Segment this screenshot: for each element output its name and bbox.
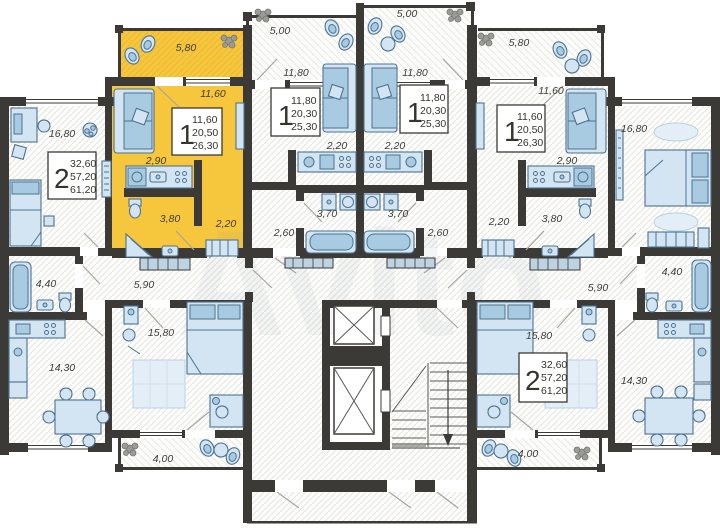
dim-highlighted-kitchen: 2,90 xyxy=(145,155,167,167)
dim-right1-balcony: 5,80 xyxy=(509,37,530,49)
floor-plan: Avito xyxy=(0,0,720,528)
dim-midright-kitchen: 2,20 xyxy=(384,140,406,152)
svg-text:57,20: 57,20 xyxy=(70,171,96,183)
elevator-shaft-2 xyxy=(334,368,390,434)
dim-right2-bedroom1: 16,80 xyxy=(621,123,647,135)
dim-midleft-living: 11,80 xyxy=(283,67,309,79)
svg-text:11,80: 11,80 xyxy=(420,92,446,104)
dim-left2-hallway: 5,90 xyxy=(134,279,155,291)
dim-left2-bedroom2: 15,80 xyxy=(148,327,174,339)
floor-plan-svg: Avito xyxy=(0,0,720,528)
dim-highlighted-living: 11,60 xyxy=(200,88,226,100)
dim-highlighted-bathroom: 3,80 xyxy=(160,213,181,225)
svg-text:32,60: 32,60 xyxy=(70,158,96,170)
dim-right1-kitchen: 2,90 xyxy=(556,155,578,167)
dim-midright-balcony: 5,00 xyxy=(397,8,418,20)
dim-right1-living: 11,60 xyxy=(538,85,564,97)
svg-text:11,60: 11,60 xyxy=(517,111,543,123)
svg-text:26,30: 26,30 xyxy=(517,137,543,149)
dim-right2-hallway: 5,90 xyxy=(588,282,609,294)
info-box-mid-left: 1 11,80 20,30 25,30 xyxy=(271,88,320,136)
dim-left2-bedroom1: 16,80 xyxy=(49,128,75,140)
dim-midleft-kitchen: 2,20 xyxy=(326,140,348,152)
dim-highlighted-hallway: 2,20 xyxy=(215,218,237,230)
dim-midleft-bathroom: 3,70 xyxy=(317,208,338,220)
info-box-highlighted: 1 11,60 20,50 26,30 xyxy=(172,108,222,155)
svg-text:20,30: 20,30 xyxy=(420,105,446,117)
svg-text:32,60: 32,60 xyxy=(541,359,567,371)
dim-right1-bathroom: 3,80 xyxy=(542,213,563,225)
info-box-left-2room: 2 32,60 57,20 61,20 xyxy=(48,152,96,199)
svg-text:2: 2 xyxy=(54,163,70,194)
dim-left2-balcony: 4,00 xyxy=(153,453,174,465)
svg-text:26,30: 26,30 xyxy=(192,140,218,152)
svg-text:25,30: 25,30 xyxy=(420,118,446,130)
svg-text:2: 2 xyxy=(525,365,541,396)
info-box-right-1room: 1 11,60 20,50 26,30 xyxy=(497,105,545,152)
dim-right2-bedroom2: 15,80 xyxy=(526,330,552,342)
dim-right1-hallway: 2,20 xyxy=(488,216,510,228)
dim-right2-bathroom: 4,40 xyxy=(662,266,683,278)
dim-right2-balcony: 4,00 xyxy=(518,448,539,460)
svg-text:20,50: 20,50 xyxy=(192,127,218,139)
dim-midleft-balcony: 5,00 xyxy=(270,25,291,37)
svg-text:20,30: 20,30 xyxy=(291,108,317,120)
svg-text:57,20: 57,20 xyxy=(541,372,567,384)
info-box-mid-right: 1 11,80 20,30 25,30 xyxy=(400,85,448,133)
dim-midright-living: 11,80 xyxy=(402,67,428,79)
svg-text:61,20: 61,20 xyxy=(541,385,567,397)
svg-text:11,80: 11,80 xyxy=(291,95,317,107)
dim-left2-kitchen: 14,30 xyxy=(49,362,75,374)
svg-text:11,60: 11,60 xyxy=(192,114,218,126)
svg-text:61,20: 61,20 xyxy=(70,184,96,196)
dim-midright-hallway: 2,60 xyxy=(427,227,449,239)
dim-left2-bathroom: 4,40 xyxy=(36,278,57,290)
dim-right2-kitchen: 14,30 xyxy=(621,375,647,387)
svg-text:25,30: 25,30 xyxy=(291,121,317,133)
dim-midright-bathroom: 3,70 xyxy=(388,208,409,220)
info-box-right-2room: 2 32,60 57,20 61,20 xyxy=(519,353,567,402)
dim-midleft-hallway: 2,60 xyxy=(273,227,295,239)
svg-text:20,50: 20,50 xyxy=(517,124,543,136)
dim-highlighted-balcony: 5,80 xyxy=(176,42,197,54)
